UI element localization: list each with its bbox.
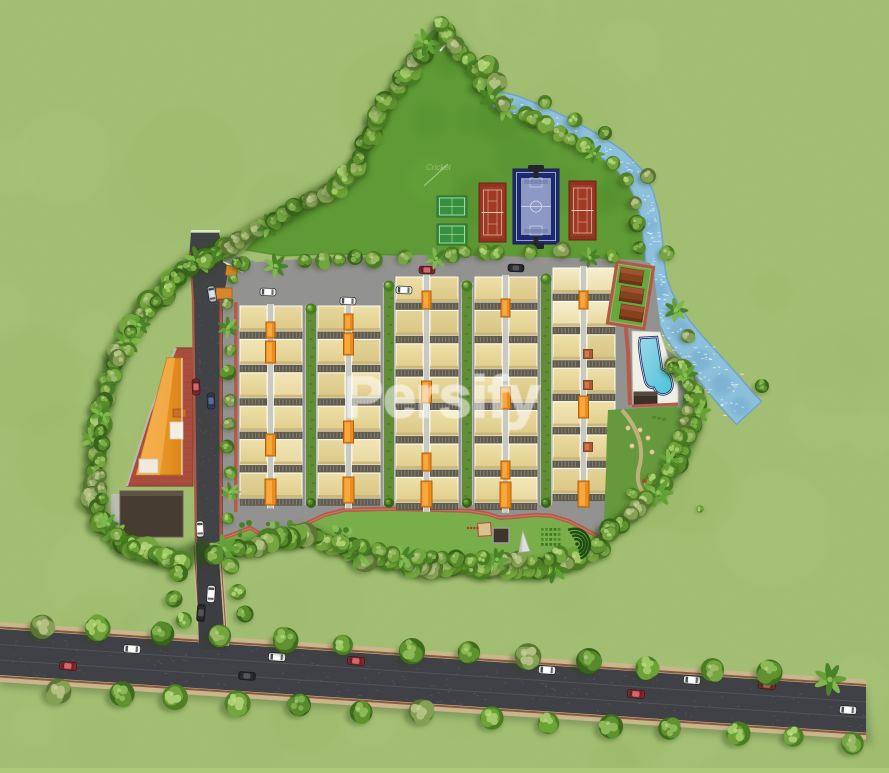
svg-text:Cricket: Cricket	[426, 163, 452, 172]
svg-text:Persify: Persify	[344, 365, 540, 430]
